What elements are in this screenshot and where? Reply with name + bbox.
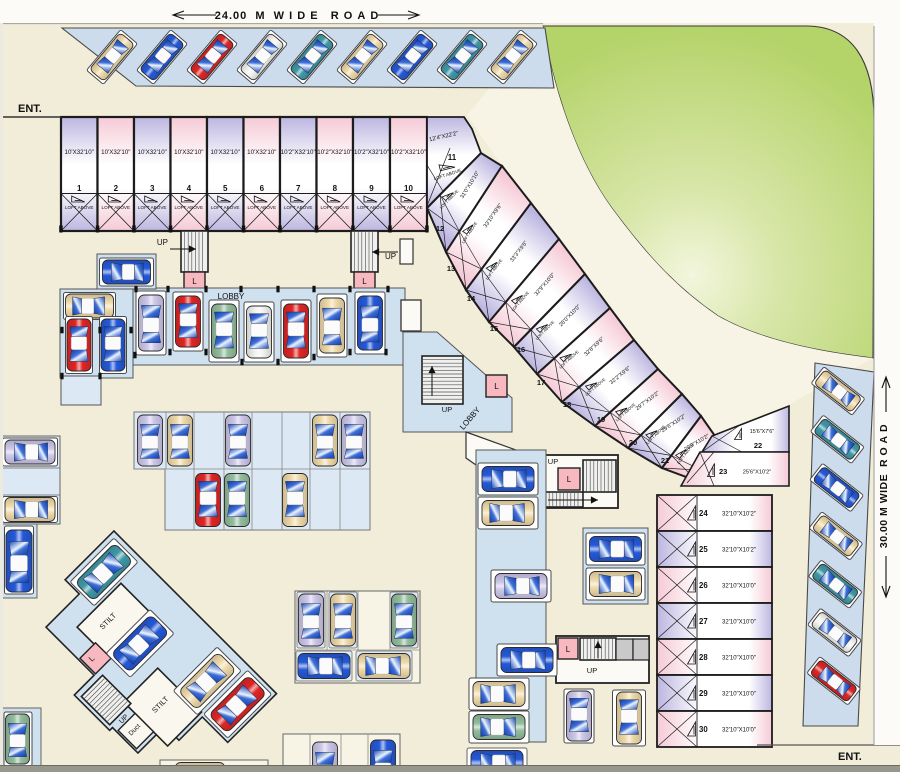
svg-text:27: 27 <box>699 617 708 626</box>
svg-text:26: 26 <box>699 581 708 590</box>
svg-text:7: 7 <box>296 184 301 193</box>
svg-text:L: L <box>567 475 572 484</box>
svg-text:11: 11 <box>448 153 457 162</box>
svg-text:4: 4 <box>187 184 192 193</box>
svg-text:LOFT ABOVE: LOFT ABOVE <box>394 205 423 210</box>
svg-text:25: 25 <box>699 545 708 554</box>
svg-text:22: 22 <box>754 441 762 450</box>
svg-text:32'10"X10'0": 32'10"X10'0" <box>722 620 756 626</box>
svg-text:UP: UP <box>442 405 452 414</box>
svg-text:10'2"X32'10": 10'2"X32'10" <box>317 149 352 156</box>
svg-text:28: 28 <box>699 653 708 662</box>
svg-text:2: 2 <box>114 184 119 193</box>
svg-text:32'10"X10'0": 32'10"X10'0" <box>722 692 756 698</box>
svg-text:10: 10 <box>404 184 413 193</box>
svg-text:10'X32'10": 10'X32'10" <box>65 149 94 156</box>
svg-text:UP: UP <box>548 457 558 466</box>
svg-text:30.00 M WIDE R O A D: 30.00 M WIDE R O A D <box>878 424 890 548</box>
svg-text:10'2"X32'10": 10'2"X32'10" <box>281 149 316 156</box>
svg-text:L: L <box>494 382 499 391</box>
svg-text:19: 19 <box>597 415 605 424</box>
svg-text:32'10"X10'2": 32'10"X10'2" <box>722 548 756 554</box>
svg-text:LOFT ABOVE: LOFT ABOVE <box>248 205 277 210</box>
svg-text:L: L <box>192 277 197 286</box>
svg-text:32'10"X10'0": 32'10"X10'0" <box>722 656 756 662</box>
svg-text:29: 29 <box>699 689 708 698</box>
svg-text:17: 17 <box>537 378 545 387</box>
svg-text:LOFT ABOVE: LOFT ABOVE <box>321 205 350 210</box>
svg-text:LOFT ABOVE: LOFT ABOVE <box>138 205 167 210</box>
svg-text:32'10"X10'2": 32'10"X10'2" <box>722 512 756 518</box>
svg-text:16: 16 <box>517 345 525 354</box>
svg-text:6: 6 <box>260 184 265 193</box>
svg-text:12: 12 <box>436 224 444 233</box>
svg-text:ENT.: ENT. <box>838 751 862 763</box>
svg-text:LOFT ABOVE: LOFT ABOVE <box>284 205 313 210</box>
svg-text:L: L <box>566 645 571 654</box>
svg-text:15'6"X7'6": 15'6"X7'6" <box>750 429 775 435</box>
svg-text:3: 3 <box>150 184 155 193</box>
svg-text:10'X32'10": 10'X32'10" <box>101 149 130 156</box>
svg-text:32'10"X10'0": 32'10"X10'0" <box>722 728 756 734</box>
svg-text:LOFT ABOVE: LOFT ABOVE <box>65 205 94 210</box>
svg-text:10'X32'10": 10'X32'10" <box>174 149 203 156</box>
svg-text:LOFT ABOVE: LOFT ABOVE <box>357 205 386 210</box>
svg-text:UP: UP <box>385 252 396 261</box>
svg-text:10'X32'10": 10'X32'10" <box>211 149 240 156</box>
svg-text:1: 1 <box>77 184 82 193</box>
svg-text:24: 24 <box>699 509 708 518</box>
svg-text:24.00 M W I D E R O A D: 24.00 M W I D E R O A D <box>215 10 380 22</box>
svg-text:LOFT ABOVE: LOFT ABOVE <box>102 205 131 210</box>
svg-text:LOBBY: LOBBY <box>218 292 245 301</box>
svg-text:LOFT ABOVE: LOFT ABOVE <box>211 205 240 210</box>
svg-text:L: L <box>362 277 367 286</box>
svg-text:14: 14 <box>467 294 476 303</box>
svg-text:8: 8 <box>333 184 338 193</box>
svg-text:23: 23 <box>719 467 727 476</box>
svg-text:13: 13 <box>447 264 455 273</box>
svg-text:UP: UP <box>157 238 168 247</box>
svg-text:30: 30 <box>699 725 708 734</box>
svg-text:UP: UP <box>587 666 597 675</box>
svg-text:25'6"X10'2": 25'6"X10'2" <box>743 470 772 476</box>
svg-text:5: 5 <box>223 184 228 193</box>
svg-text:18: 18 <box>563 400 571 409</box>
svg-text:ENT.: ENT. <box>18 103 42 115</box>
svg-text:21: 21 <box>661 456 669 465</box>
svg-text:10'X32'10": 10'X32'10" <box>138 149 167 156</box>
svg-text:15: 15 <box>490 324 498 333</box>
svg-text:LOFT ABOVE: LOFT ABOVE <box>175 205 204 210</box>
svg-text:10'2"X32'10": 10'2"X32'10" <box>354 149 389 156</box>
svg-text:10'2"X32'10": 10'2"X32'10" <box>391 149 426 156</box>
svg-text:20: 20 <box>629 438 637 447</box>
svg-text:32'10"X10'0": 32'10"X10'0" <box>722 584 756 590</box>
svg-text:9: 9 <box>369 184 374 193</box>
svg-text:10'X32'10": 10'X32'10" <box>247 149 276 156</box>
